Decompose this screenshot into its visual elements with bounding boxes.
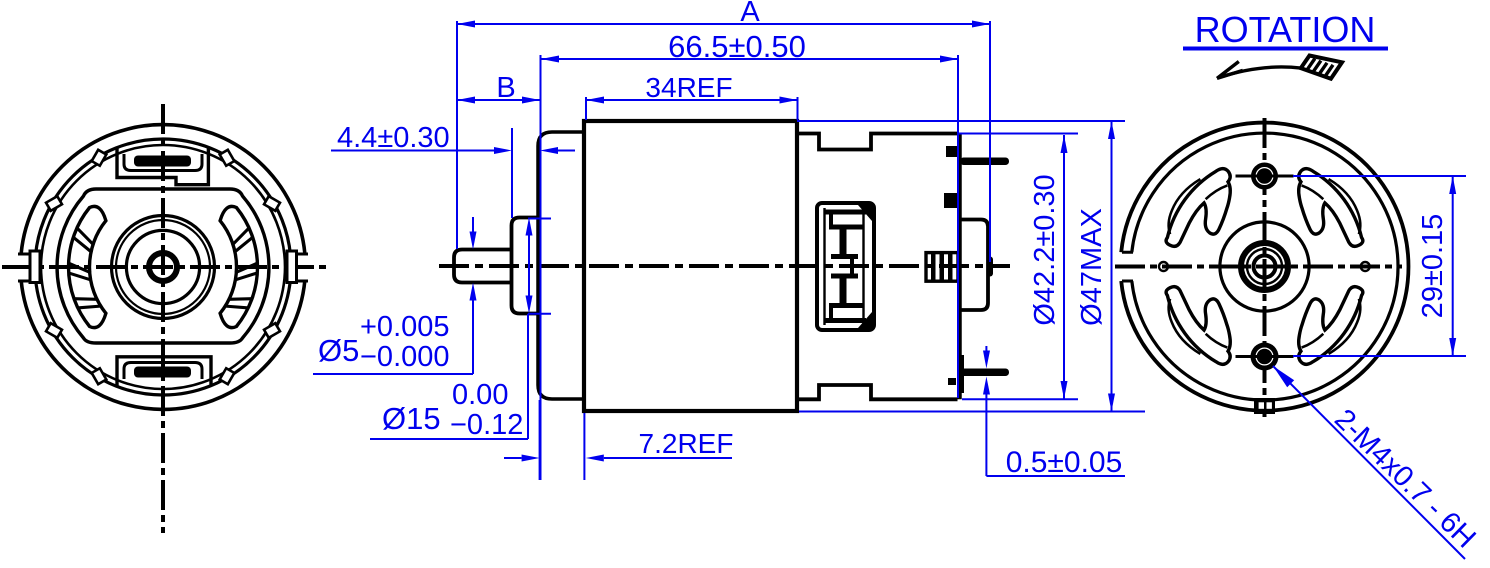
svg-text:0.00: 0.00 [452, 379, 508, 411]
svg-text:ROTATION: ROTATION [1195, 9, 1376, 50]
svg-text:34REF: 34REF [645, 72, 732, 103]
svg-text:7.2REF: 7.2REF [639, 428, 734, 459]
svg-text:Ø47MAX: Ø47MAX [1076, 208, 1108, 326]
svg-text:Ø5: Ø5 [318, 333, 359, 368]
svg-text:29±0.15: 29±0.15 [1417, 214, 1449, 319]
svg-text:66.5±0.50: 66.5±0.50 [668, 29, 806, 64]
svg-text:−0.12: −0.12 [450, 409, 523, 441]
svg-text:−0.000: −0.000 [360, 341, 450, 373]
svg-text:B: B [496, 72, 515, 104]
svg-text:4.4±0.30: 4.4±0.30 [337, 122, 450, 154]
svg-text:A: A [740, 0, 760, 28]
svg-text:Ø42.2±0.30: Ø42.2±0.30 [1029, 174, 1061, 325]
svg-text:Ø15: Ø15 [382, 401, 441, 436]
svg-text:0.5±0.05: 0.5±0.05 [1006, 446, 1123, 479]
svg-text:+0.005: +0.005 [360, 311, 450, 343]
